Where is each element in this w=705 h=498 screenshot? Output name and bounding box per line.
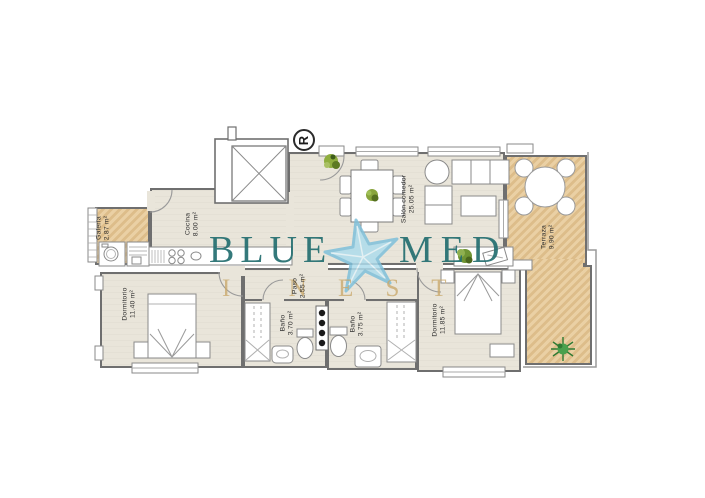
room-label-cocina: Cocina8.00 m² [185,212,202,236]
brand-word-blue: BLUE [209,231,332,269]
room-label-dormitorio1: Dormitorio11.40 m² [122,287,139,320]
rotation-marker: R [293,129,315,151]
brand-sub-left: I N [222,276,333,301]
floor-plan-canvas: BLUE MED I N E S T R Galería2.87 m² Coci… [0,0,705,498]
room-label-bano2: Baño3.75 m² [350,312,367,336]
room-label-paso: Paso2.55 m² [292,274,309,298]
starfish-icon [0,0,705,498]
rotation-marker-label: R [296,135,311,144]
room-label-dormitorio2: Dormitorio11.85 m² [432,303,449,336]
room-label-salon: Salón comedor25.05 m² [401,175,418,223]
room-label-bano1: Baño3.70 m² [280,311,297,335]
room-label-galeria: Galería2.87 m² [96,216,113,240]
brand-word-med: MED [399,231,507,269]
room-label-terraza: Terraza9.90 m² [541,225,558,249]
brand-sub-right: E S T [338,276,460,301]
